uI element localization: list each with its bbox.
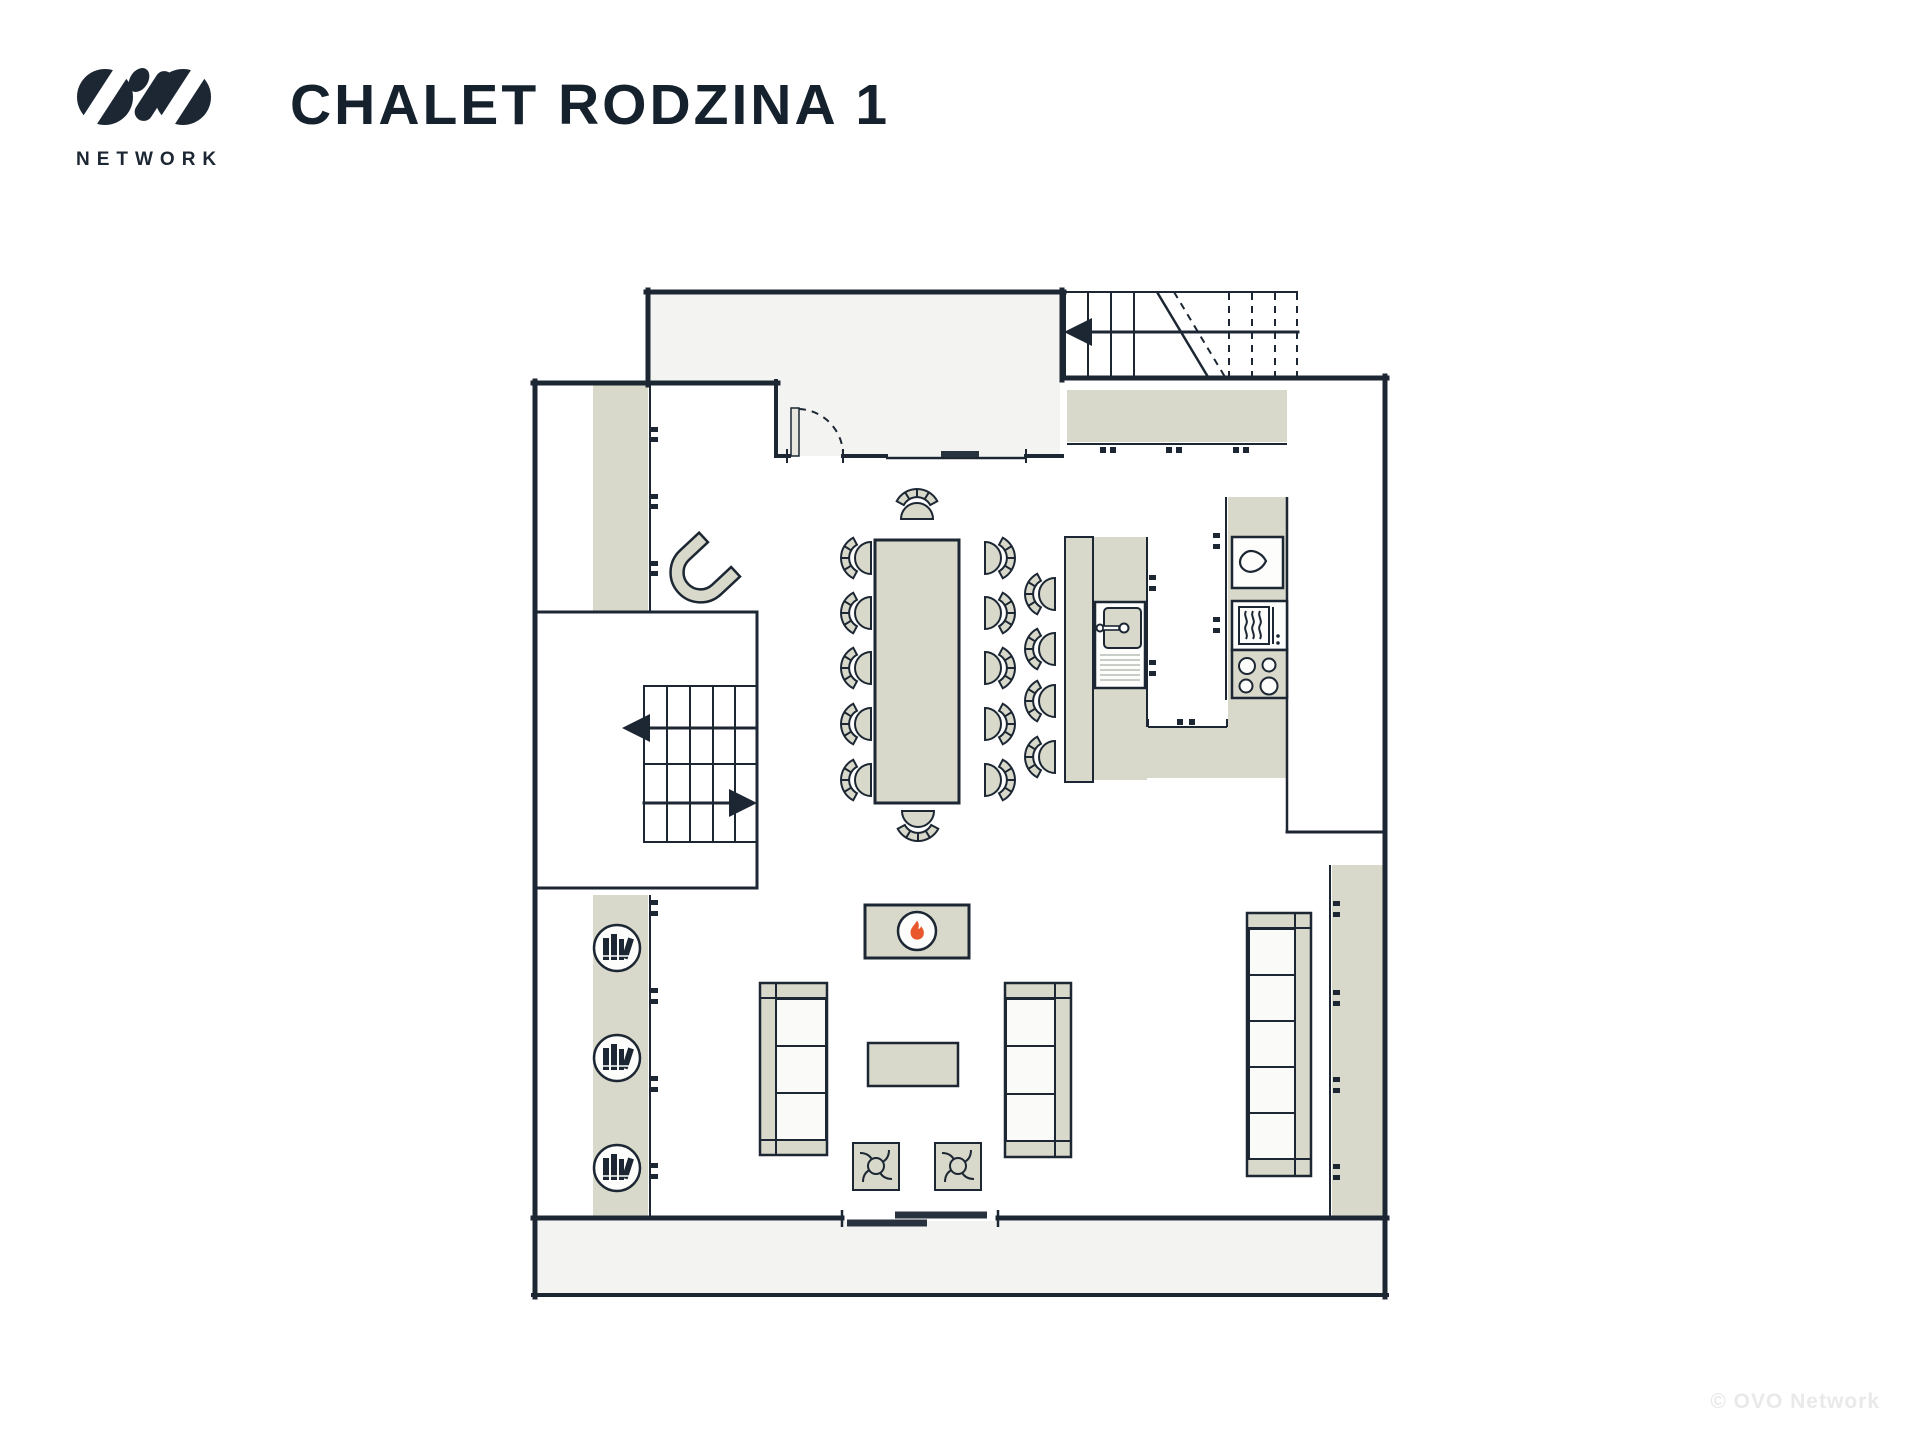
dining-chair: [841, 593, 871, 634]
dining-chair: [898, 811, 939, 841]
fireplace: [865, 905, 969, 958]
water-drop-unit: [1232, 537, 1283, 588]
dining-area: [841, 489, 1055, 841]
kitchen-wall-counter: [1067, 390, 1287, 442]
armchair: [658, 533, 740, 615]
pouf: [935, 1143, 981, 1190]
sofa-left: [760, 983, 827, 1155]
dining-chair: [985, 538, 1015, 579]
staircase-upper: [1064, 292, 1298, 377]
books-icon: [594, 1145, 640, 1191]
wardrobe-strip: [593, 385, 648, 612]
books-icon: [594, 1035, 640, 1081]
dining-chair: [985, 760, 1015, 801]
dining-chair: [985, 593, 1015, 634]
dining-chair: [1025, 681, 1055, 722]
stair-arrow-icon: [729, 789, 757, 817]
page: { "header": { "logo_brand": "OVO", "logo…: [0, 0, 1920, 1440]
island-end-cabinet: [1065, 537, 1093, 782]
dining-chair: [1025, 574, 1055, 615]
entry-vestibule: [650, 294, 1060, 456]
hob: [1232, 650, 1287, 698]
living-room: [760, 905, 1311, 1190]
sofa-right: [1005, 983, 1071, 1157]
coffee-table: [868, 1043, 958, 1086]
burners-icon: [1239, 658, 1255, 674]
stair-arrow-icon: [622, 714, 650, 742]
bookshelf-icons: [594, 925, 640, 1191]
floor-plan: [0, 0, 1920, 1440]
door-leaf: [791, 408, 799, 456]
stair-arrow-icon: [1064, 318, 1092, 346]
dining-chair: [985, 648, 1015, 689]
dining-chair: [1025, 629, 1055, 670]
dining-table: [875, 540, 959, 803]
balcony: [538, 1221, 1383, 1293]
sink-icon: [1095, 602, 1145, 688]
dining-chair: [1025, 737, 1055, 778]
watermark: © OVO Network: [1710, 1390, 1880, 1414]
oven: [1232, 601, 1287, 650]
dining-chair: [985, 704, 1015, 745]
dining-chair: [841, 704, 871, 745]
dining-chair: [841, 760, 871, 801]
staircase-lower: [622, 686, 757, 842]
dining-chair: [841, 648, 871, 689]
pouf: [853, 1143, 899, 1190]
kitchen-bottom-counter: [1147, 727, 1228, 778]
window-bench: [1247, 913, 1311, 1176]
dining-chair: [841, 538, 871, 579]
dining-chair: [897, 489, 938, 519]
books-icon: [594, 925, 640, 971]
